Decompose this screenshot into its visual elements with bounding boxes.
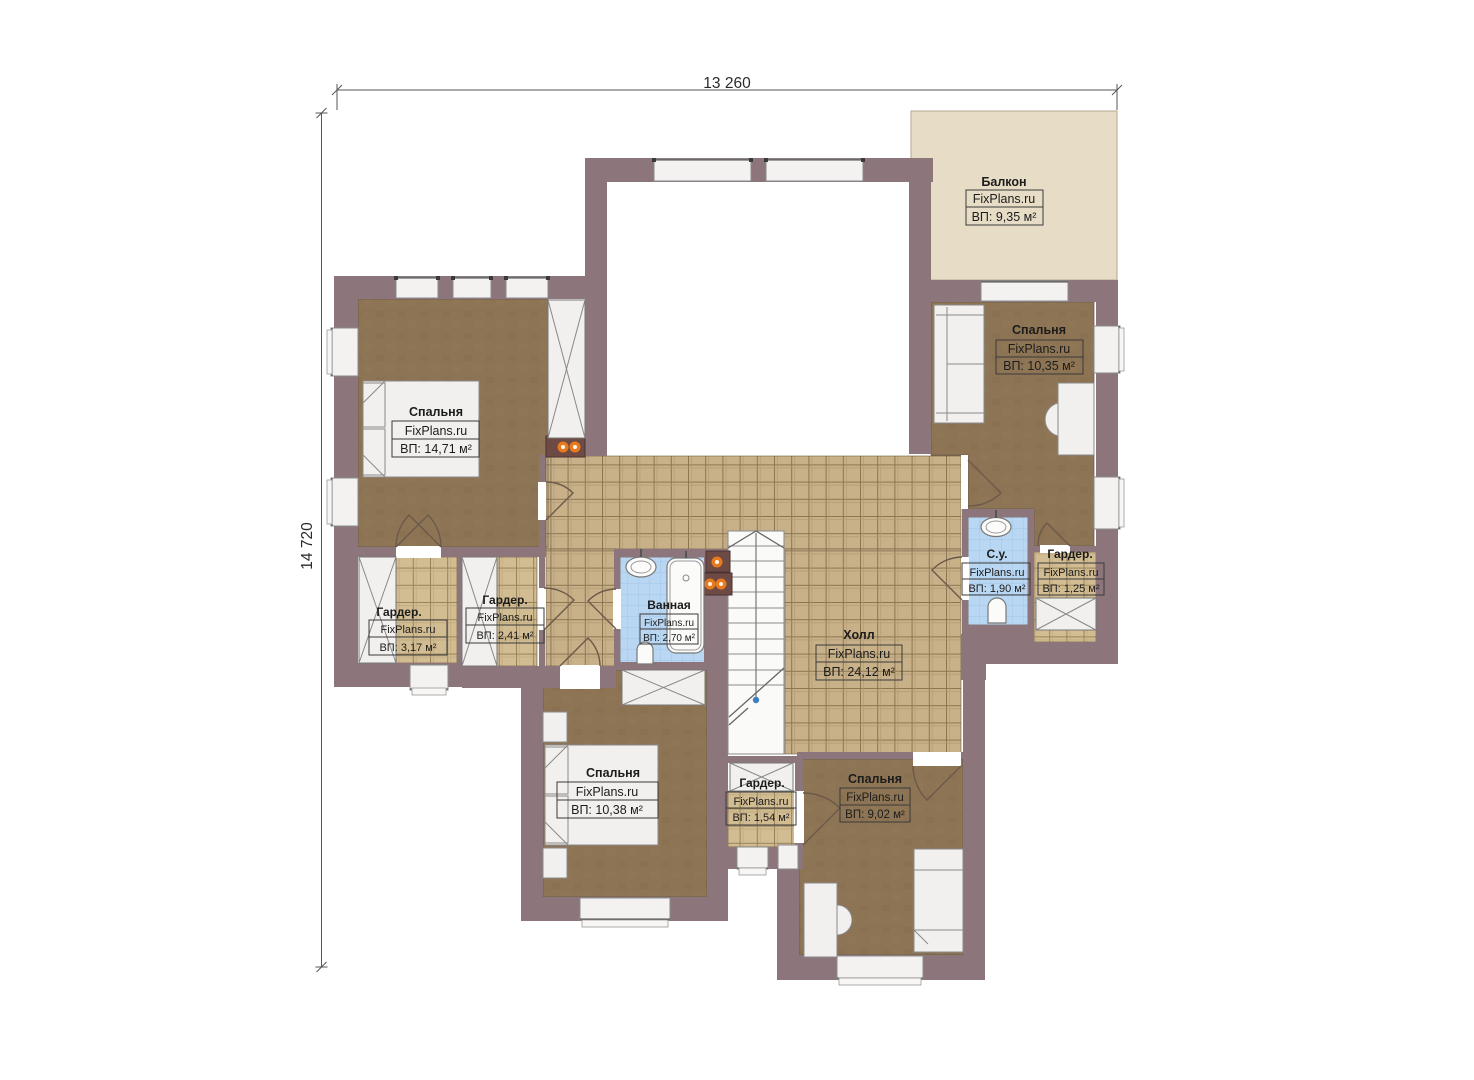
svg-text:Ванная: Ванная <box>647 598 691 612</box>
svg-text:Спальня: Спальня <box>409 405 463 419</box>
svg-text:ВП: 1,25 м²: ВП: 1,25 м² <box>1042 583 1099 595</box>
svg-text:FixPlans.ru: FixPlans.ru <box>405 424 468 438</box>
svg-text:Балкон: Балкон <box>981 175 1026 189</box>
svg-text:FixPlans.ru: FixPlans.ru <box>380 624 435 636</box>
svg-text:ВП: 2,41 м²: ВП: 2,41 м² <box>476 630 533 642</box>
svg-text:Спальня: Спальня <box>848 772 902 786</box>
svg-text:Гардер.: Гардер. <box>739 776 784 790</box>
svg-text:ВП: 3,17 м²: ВП: 3,17 м² <box>379 642 436 654</box>
svg-text:Гардер.: Гардер. <box>376 605 421 619</box>
svg-text:FixPlans.ru: FixPlans.ru <box>576 785 639 799</box>
svg-text:ВП: 1,54 м²: ВП: 1,54 м² <box>732 812 789 824</box>
svg-text:ВП: 14,71 м²: ВП: 14,71 м² <box>400 442 472 456</box>
svg-text:FixPlans.ru: FixPlans.ru <box>477 612 532 624</box>
svg-text:FixPlans.ru: FixPlans.ru <box>973 192 1036 206</box>
svg-text:Гардер.: Гардер. <box>482 593 527 607</box>
svg-text:Холл: Холл <box>843 628 874 642</box>
svg-text:Спальня: Спальня <box>586 766 640 780</box>
svg-text:ВП: 10,38 м²: ВП: 10,38 м² <box>571 803 643 817</box>
svg-text:FixPlans.ru: FixPlans.ru <box>644 618 694 629</box>
svg-text:FixPlans.ru: FixPlans.ru <box>733 796 788 808</box>
svg-text:ВП: 9,35 м²: ВП: 9,35 м² <box>972 210 1037 224</box>
svg-text:ВП: 9,02 м²: ВП: 9,02 м² <box>845 809 905 821</box>
svg-text:ВП: 2,70 м²: ВП: 2,70 м² <box>643 633 696 644</box>
svg-text:14 720: 14 720 <box>299 522 316 570</box>
svg-text:С.у.: С.у. <box>987 547 1008 561</box>
svg-text:Гардер.: Гардер. <box>1047 547 1092 561</box>
svg-text:13 260: 13 260 <box>703 75 751 92</box>
svg-text:ВП: 24,12 м²: ВП: 24,12 м² <box>823 665 895 679</box>
svg-text:FixPlans.ru: FixPlans.ru <box>1008 342 1071 356</box>
svg-text:FixPlans.ru: FixPlans.ru <box>828 647 891 661</box>
svg-text:FixPlans.ru: FixPlans.ru <box>846 792 904 804</box>
svg-text:Спальня: Спальня <box>1012 323 1066 337</box>
svg-text:FixPlans.ru: FixPlans.ru <box>1043 567 1098 579</box>
svg-text:FixPlans.ru: FixPlans.ru <box>969 567 1024 579</box>
svg-text:ВП: 10,35 м²: ВП: 10,35 м² <box>1003 359 1075 373</box>
svg-text:ВП: 1,90 м²: ВП: 1,90 м² <box>968 583 1025 595</box>
